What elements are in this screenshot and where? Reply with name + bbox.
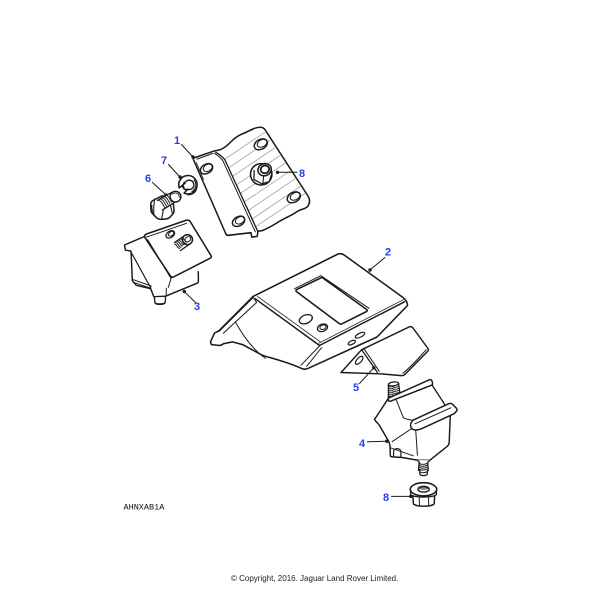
svg-text:3: 3: [194, 301, 200, 313]
svg-text:1: 1: [174, 135, 180, 147]
svg-text:© Copyright, 2016. Jaguar Land: © Copyright, 2016. Jaguar Land Rover Lim…: [231, 574, 398, 583]
svg-text:2: 2: [385, 246, 391, 258]
svg-text:8: 8: [383, 492, 389, 504]
svg-text:AHNXAB1A: AHNXAB1A: [124, 503, 166, 513]
svg-text:7: 7: [161, 155, 167, 167]
svg-text:5: 5: [353, 382, 359, 394]
svg-text:4: 4: [359, 438, 366, 450]
svg-text:8: 8: [299, 168, 305, 180]
svg-text:6: 6: [145, 173, 151, 185]
